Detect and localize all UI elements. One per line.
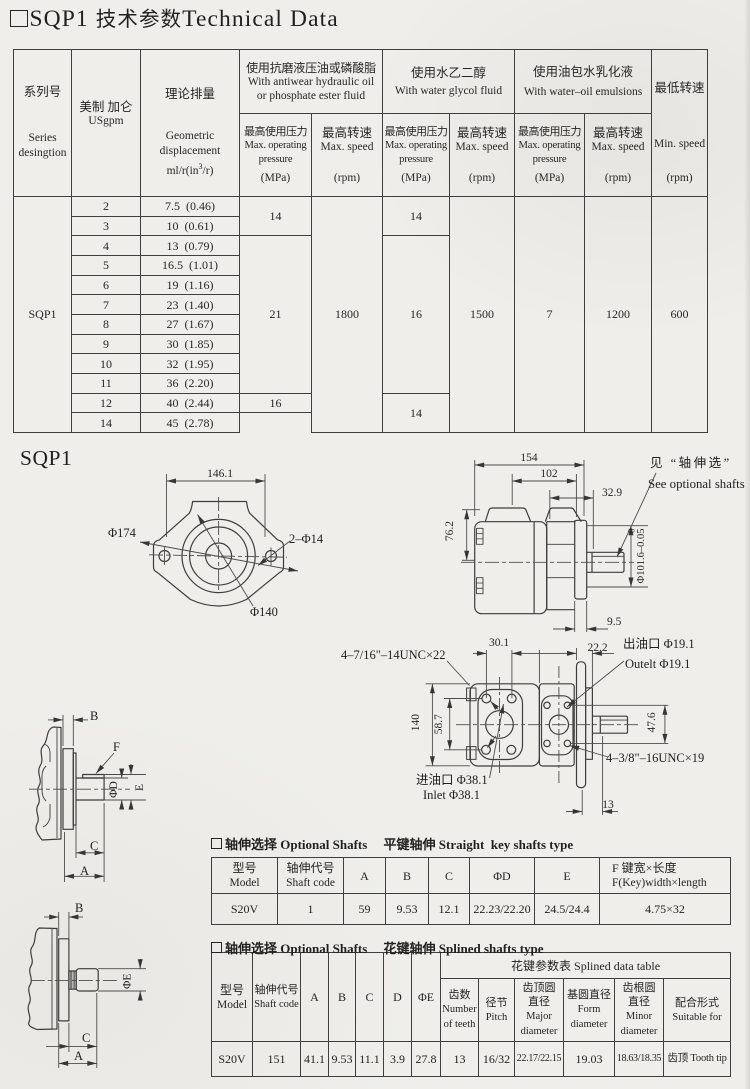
svg-text:C: C — [82, 1031, 90, 1045]
svg-text:ΦE: ΦE — [122, 974, 134, 989]
svg-text:见 “轴伸选”: 见 “轴伸选” — [650, 455, 732, 470]
svg-text:58.7: 58.7 — [433, 714, 445, 734]
svg-text:140: 140 — [410, 714, 422, 732]
svg-text:47.6: 47.6 — [646, 712, 658, 732]
svg-text:Φ101.6–0.05: Φ101.6–0.05 — [636, 529, 647, 584]
svg-text:Inlet Φ38.1: Inlet Φ38.1 — [423, 788, 480, 802]
svg-text:4–3/8"–16UNC×19: 4–3/8"–16UNC×19 — [606, 751, 704, 765]
svg-text:C: C — [90, 839, 98, 853]
svg-text:See optional shafts: See optional shafts — [648, 477, 745, 491]
svg-text:22.2: 22.2 — [587, 642, 607, 654]
svg-text:Φ174: Φ174 — [108, 526, 137, 540]
svg-text:30.1: 30.1 — [489, 637, 509, 649]
svg-text:ΦD: ΦD — [108, 781, 120, 798]
svg-text:Outelt Φ19.1: Outelt Φ19.1 — [625, 657, 690, 671]
svg-text:2–Φ14: 2–Φ14 — [289, 532, 324, 546]
svg-text:154: 154 — [520, 452, 538, 464]
svg-text:76.2: 76.2 — [444, 521, 456, 541]
svg-text:B: B — [90, 709, 98, 723]
svg-text:0: 0 — [627, 528, 637, 533]
svg-text:102: 102 — [540, 468, 558, 480]
svg-text:进油口 Φ38.1: 进油口 Φ38.1 — [416, 773, 488, 787]
svg-text:4–7/16"–14UNC×22: 4–7/16"–14UNC×22 — [341, 648, 446, 662]
svg-text:F: F — [113, 740, 120, 754]
svg-text:9.5: 9.5 — [607, 616, 622, 628]
svg-text:146.1: 146.1 — [207, 468, 233, 480]
svg-text:出油口 Φ19.1: 出油口 Φ19.1 — [623, 637, 695, 651]
svg-text:B: B — [75, 901, 83, 915]
svg-text:E: E — [134, 784, 146, 791]
svg-text:32.9: 32.9 — [602, 487, 622, 499]
svg-text:A: A — [74, 1049, 83, 1063]
svg-text:A: A — [80, 864, 89, 878]
svg-text:Φ140: Φ140 — [250, 605, 278, 619]
svg-text:13: 13 — [602, 799, 614, 811]
